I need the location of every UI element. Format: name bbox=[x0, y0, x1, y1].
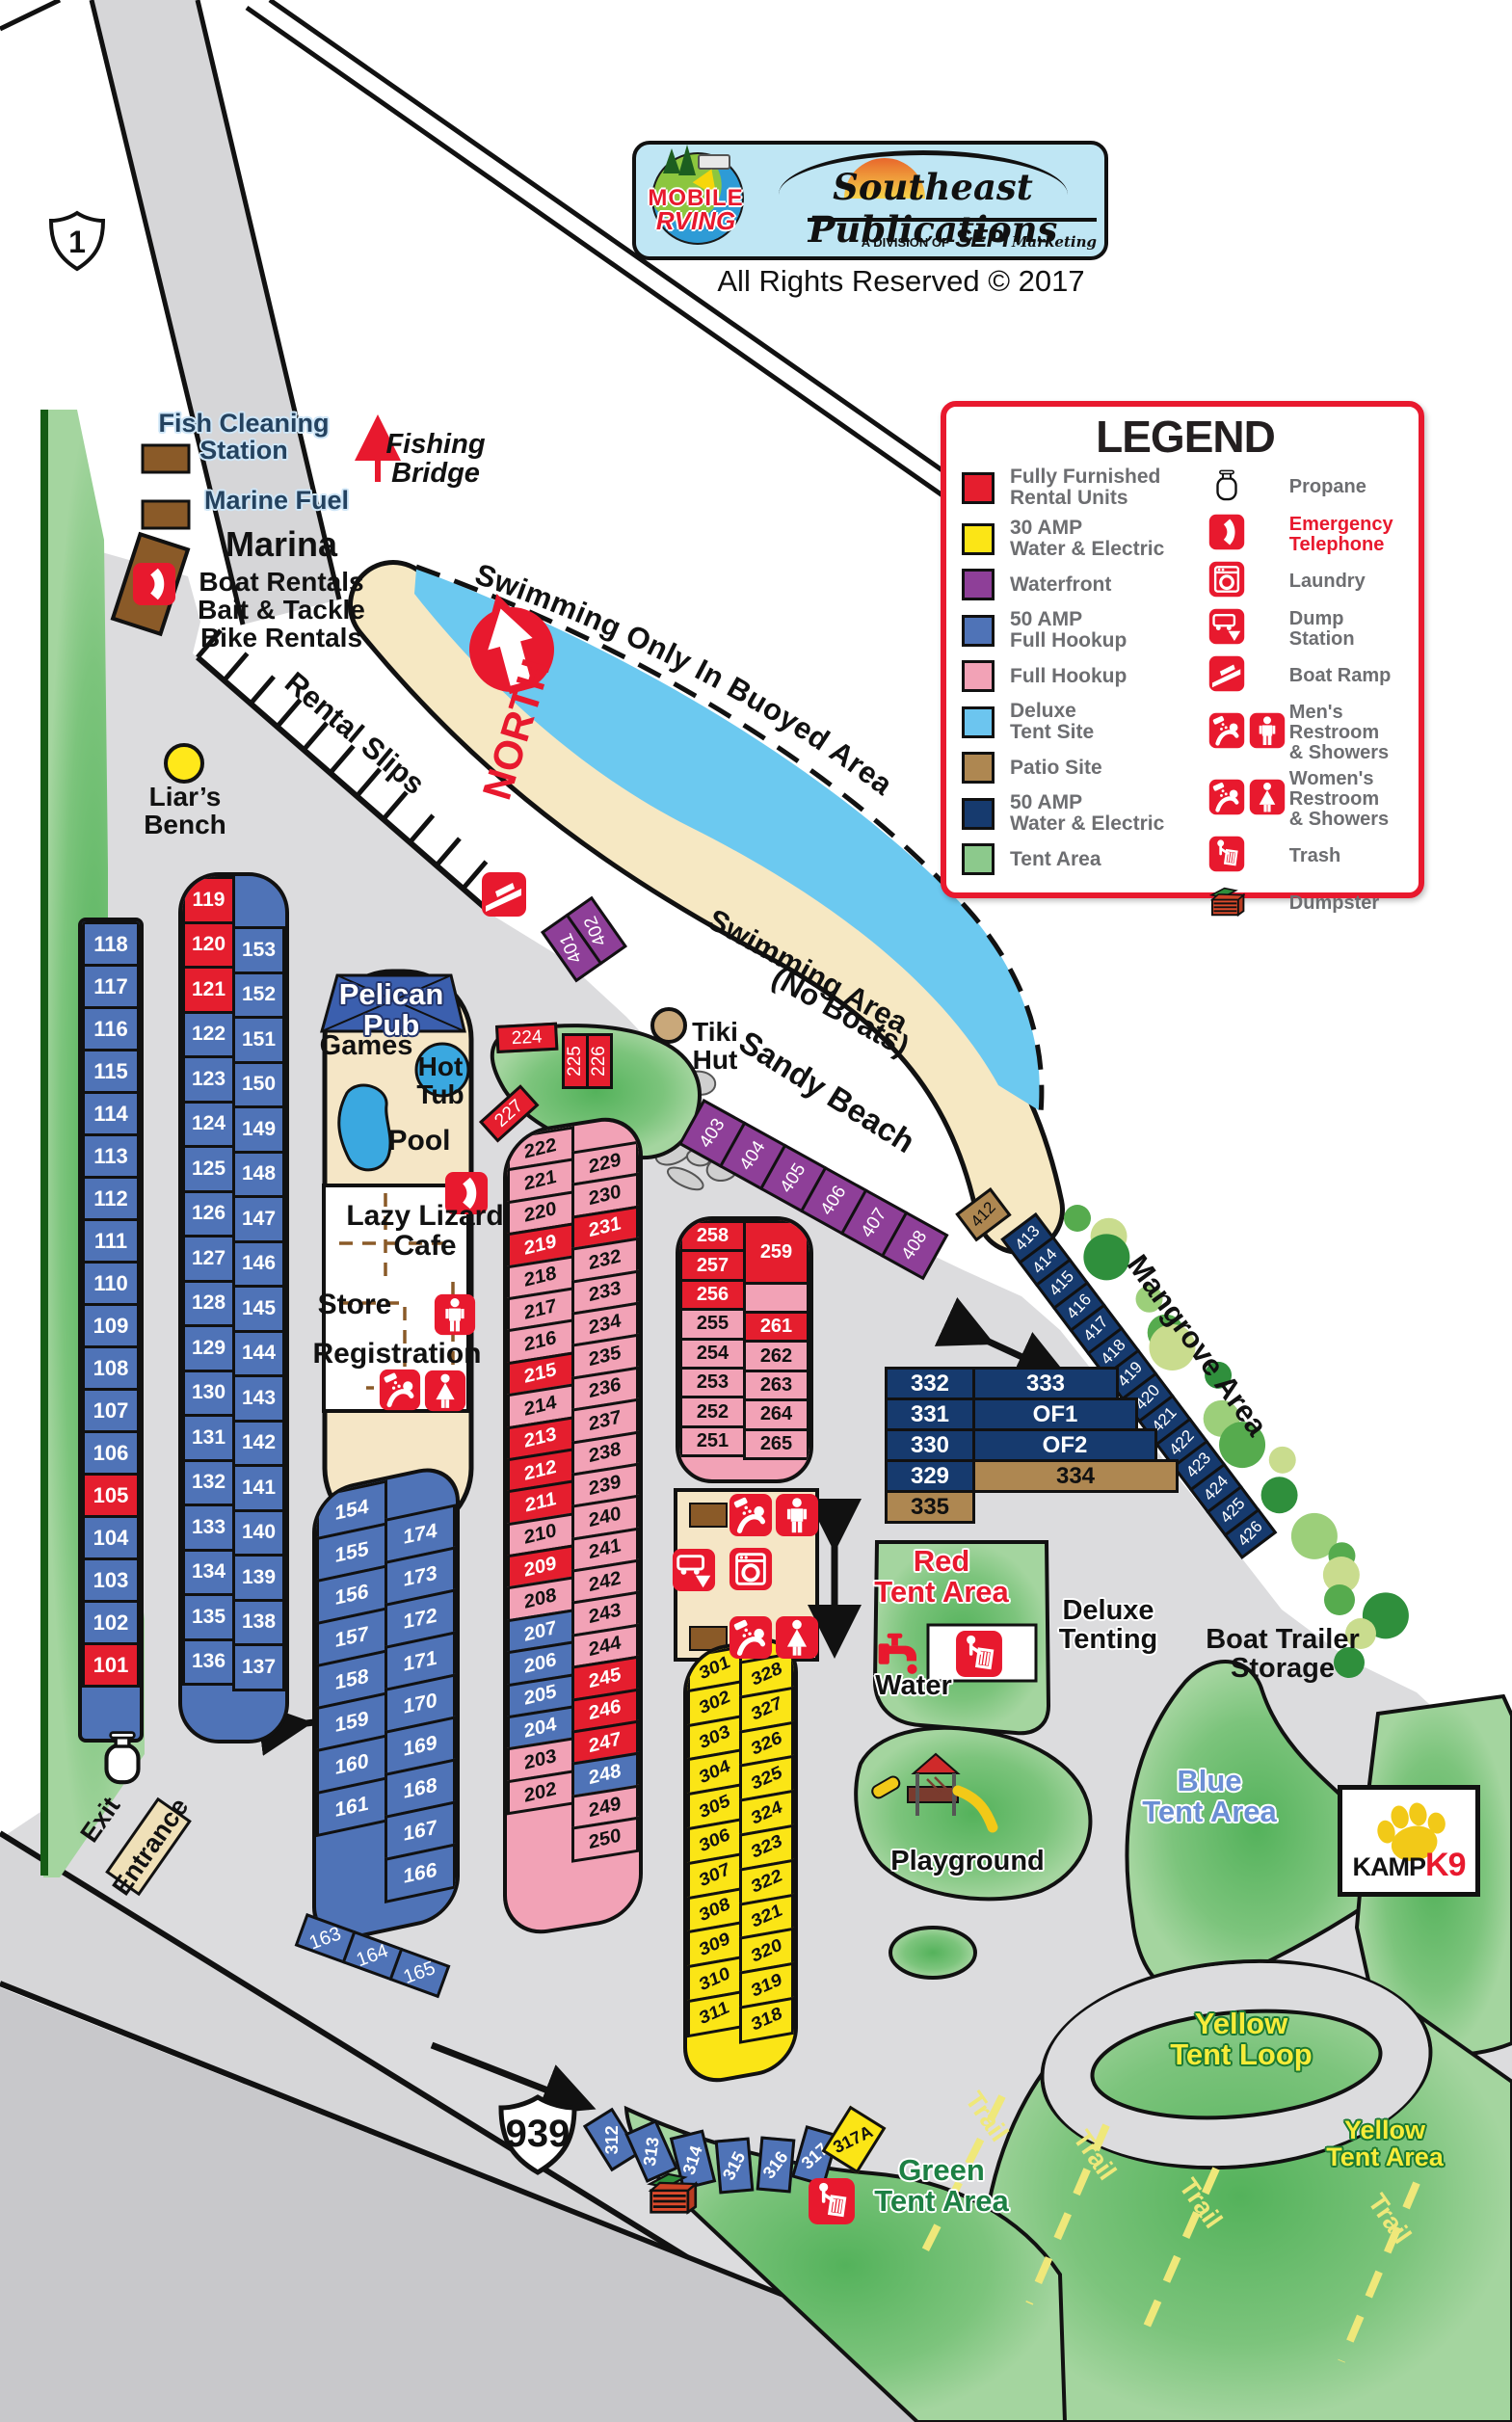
legend-swatch bbox=[962, 706, 995, 738]
legend-site-type-row: 50 AMP Full Hookup bbox=[962, 609, 1208, 652]
map-label: NORTH bbox=[475, 654, 557, 805]
legend-amenity-row: Men's Restroom & Showers bbox=[1208, 703, 1409, 763]
legend-swatch bbox=[962, 472, 995, 504]
map-label: Hot Tub bbox=[416, 1052, 464, 1108]
legend-amenity-row: Emergency Telephone bbox=[1208, 514, 1409, 555]
man-icon bbox=[1249, 712, 1289, 754]
legend-swatch bbox=[962, 523, 995, 555]
map-label: Trail bbox=[1069, 2125, 1122, 2185]
legend: LEGEND Fully Furnished Rental Units30 AM… bbox=[941, 401, 1424, 898]
legend-label: Emergency Telephone bbox=[1289, 515, 1393, 555]
campground-map: Swimming Only In Buoyed Area bbox=[0, 0, 1512, 2422]
propane-icon bbox=[1208, 466, 1249, 508]
map-label: Boat Trailer Storage bbox=[1206, 1625, 1360, 1683]
legend-swatch bbox=[962, 843, 995, 875]
map-label: Tiki Hut bbox=[692, 1018, 738, 1074]
legend-amenities: PropaneEmergency TelephoneLaundryDump St… bbox=[1208, 466, 1409, 930]
legend-amenity-row: Dumpster bbox=[1208, 883, 1409, 924]
woman-icon bbox=[1249, 779, 1289, 820]
map-label: Pool bbox=[388, 1126, 451, 1156]
legend-label: Men's Restroom & Showers bbox=[1289, 703, 1409, 763]
marketing-text: Marketing bbox=[1012, 233, 1097, 251]
legend-amenity-row: Laundry bbox=[1208, 561, 1409, 602]
legend-amenity-row: Women's Restroom & Showers bbox=[1208, 769, 1409, 830]
map-label: Exit bbox=[75, 1793, 124, 1848]
legend-label: Dumpster bbox=[1289, 893, 1379, 914]
map-label: Trail bbox=[1175, 2173, 1228, 2233]
legend-swatch bbox=[962, 569, 995, 600]
legend-label: Patio Site bbox=[1010, 758, 1102, 779]
map-label: Blue Tent Area bbox=[1142, 1766, 1277, 1827]
legend-swatch bbox=[962, 798, 995, 830]
map-label: Deluxe Tenting bbox=[1059, 1596, 1158, 1654]
legend-amenity-row: Dump Station bbox=[1208, 608, 1409, 650]
map-label: Trail bbox=[1364, 2189, 1417, 2249]
map-label: Yellow Tent Area bbox=[1326, 2116, 1444, 2170]
legend-amenity-row: Boat Ramp bbox=[1208, 655, 1409, 697]
map-labels: Fish Cleaning StationMarine FuelMarinaBo… bbox=[0, 0, 1512, 2422]
map-label: Store bbox=[318, 1290, 392, 1319]
map-label: Games bbox=[320, 1031, 413, 1060]
legend-label: Deluxe Tent Site bbox=[1010, 701, 1094, 743]
map-label: Rental Slips bbox=[279, 667, 431, 801]
legend-swatch bbox=[962, 752, 995, 784]
legend-site-type-row: Patio Site bbox=[962, 752, 1208, 784]
legend-swatch bbox=[962, 615, 995, 647]
legend-label: 50 AMP Full Hookup bbox=[1010, 609, 1127, 652]
map-label: Fishing Bridge bbox=[385, 430, 485, 488]
legend-site-type-row: Deluxe Tent Site bbox=[962, 701, 1208, 743]
shower-icon bbox=[1208, 779, 1249, 820]
laundry-icon bbox=[1208, 561, 1249, 602]
map-label: Mangrove Area bbox=[1121, 1250, 1272, 1442]
legend-label: Dump Station bbox=[1289, 609, 1409, 650]
legend-label: 50 AMP Water & Electric bbox=[1010, 792, 1164, 835]
legend-label: Waterfront bbox=[1010, 574, 1111, 596]
map-label: Registration bbox=[312, 1339, 481, 1369]
legend-label: Women's Restroom & Showers bbox=[1289, 769, 1409, 830]
map-label: Marine Fuel bbox=[204, 487, 349, 514]
map-label: Yellow Tent Loop bbox=[1170, 2009, 1313, 2070]
shower-icon bbox=[1208, 712, 1249, 754]
legend-site-type-row: Tent Area bbox=[962, 843, 1208, 875]
publisher-logo: MOBILE RVING Southeast Publications A DI… bbox=[632, 141, 1108, 260]
sepi-text: SEPI bbox=[955, 224, 1008, 253]
ramp-icon bbox=[1208, 655, 1249, 697]
legend-site-type-row: 30 AMP Water & Electric bbox=[962, 518, 1208, 560]
legend-site-type-row: Full Hookup bbox=[962, 660, 1208, 692]
logo-rving: RVING bbox=[642, 206, 750, 236]
mobile-rving-logo: MOBILE RVING bbox=[642, 146, 750, 254]
map-label: Boat Rentals Bait & Tackle Bike Rentals bbox=[198, 568, 365, 652]
trash-icon bbox=[1208, 836, 1249, 877]
map-label: Water bbox=[875, 1671, 952, 1700]
legend-label: 30 AMP Water & Electric bbox=[1010, 518, 1164, 560]
legend-site-types: Fully Furnished Rental Units30 AMP Water… bbox=[962, 466, 1208, 930]
legend-label: Fully Furnished Rental Units bbox=[1010, 466, 1160, 509]
legend-label: Trash bbox=[1289, 846, 1340, 866]
map-label: Liar’s Bench bbox=[144, 783, 226, 838]
legend-amenity-row: Trash bbox=[1208, 836, 1409, 877]
legend-label: Laundry bbox=[1289, 572, 1366, 592]
map-label: Marina bbox=[225, 526, 337, 562]
map-label: Trail bbox=[961, 2087, 1014, 2146]
legend-amenity-row: Propane bbox=[1208, 466, 1409, 508]
legend-label: Full Hookup bbox=[1010, 666, 1127, 687]
map-label: Lazy Lizard Cafe bbox=[346, 1201, 503, 1261]
legend-title: LEGEND bbox=[962, 414, 1409, 459]
division-text: A DIVISION OF bbox=[862, 235, 949, 250]
map-label: Playground bbox=[890, 1847, 1045, 1876]
legend-site-type-row: 50 AMP Water & Electric bbox=[962, 792, 1208, 835]
map-label: Green Tent Area bbox=[874, 2155, 1009, 2217]
legend-label: Propane bbox=[1289, 477, 1366, 497]
map-label: Red Tent Area bbox=[874, 1546, 1009, 1608]
rv-icon bbox=[698, 154, 730, 170]
map-label: Fish Cleaning Station bbox=[158, 410, 329, 464]
dump-icon bbox=[1208, 608, 1249, 650]
legend-label: Tent Area bbox=[1010, 849, 1101, 870]
legend-site-type-row: Fully Furnished Rental Units bbox=[962, 466, 1208, 509]
legend-site-type-row: Waterfront bbox=[962, 569, 1208, 600]
legend-label: Boat Ramp bbox=[1289, 666, 1392, 686]
dumpster-icon bbox=[1208, 883, 1249, 924]
legend-swatch bbox=[962, 660, 995, 692]
phone-icon bbox=[1208, 514, 1249, 555]
